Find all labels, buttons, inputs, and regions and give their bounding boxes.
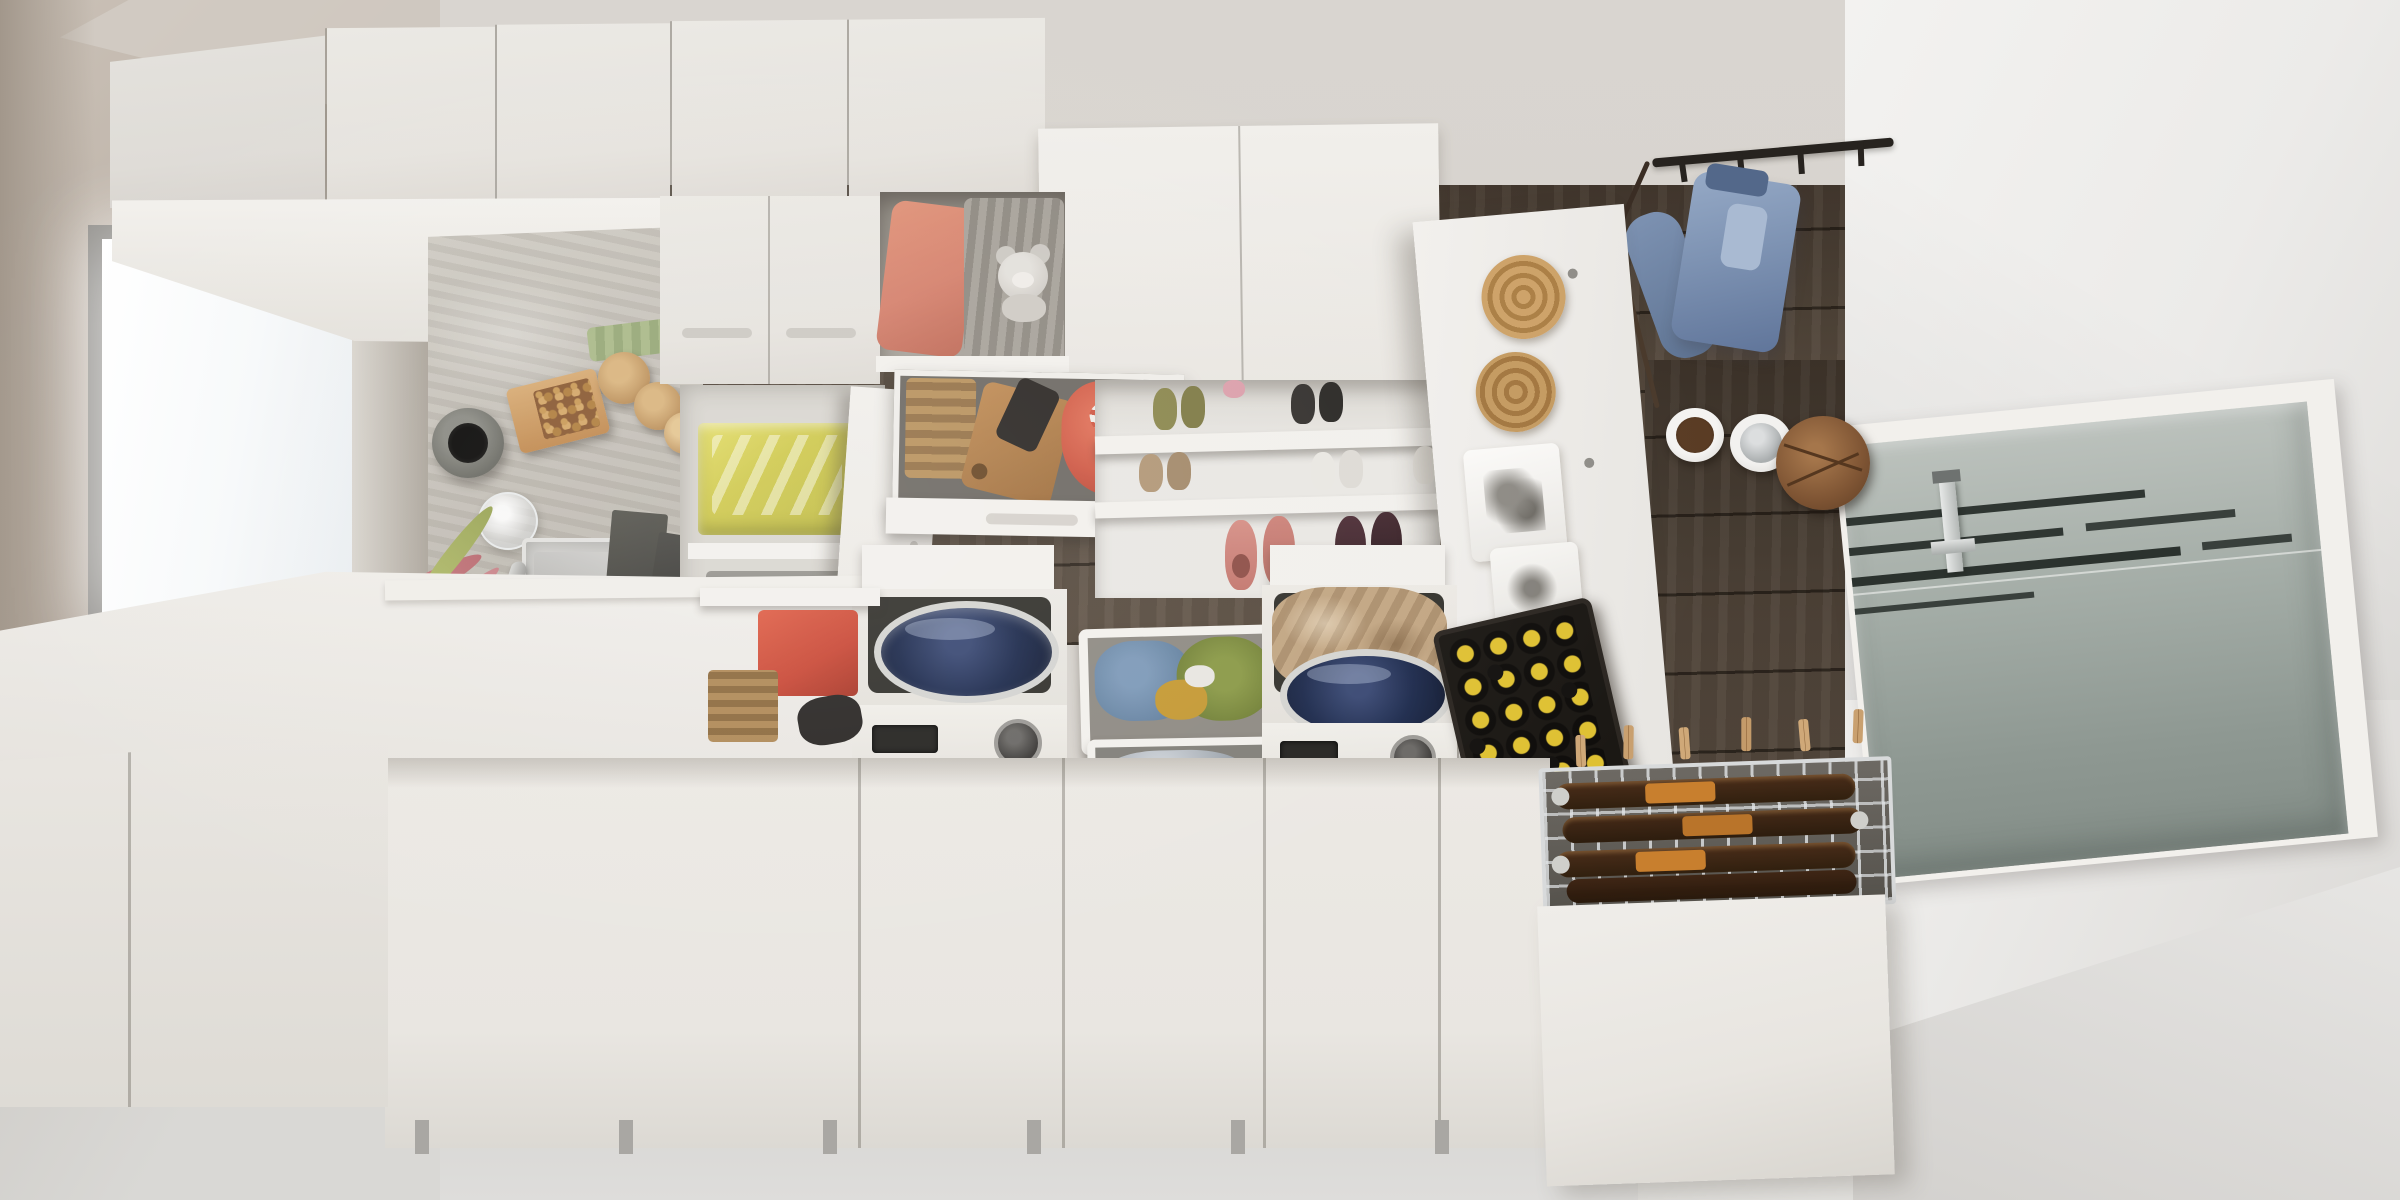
- front-seam: [1062, 758, 1065, 1148]
- front-seam: [858, 758, 861, 1148]
- door-handle-lever: [1931, 538, 1976, 555]
- handle-slot: [682, 328, 752, 338]
- clothespin: [1741, 717, 1751, 751]
- bottle-cap: [1551, 787, 1570, 806]
- door-seam: [847, 20, 849, 202]
- clothespin: [1575, 735, 1586, 767]
- shoe-tan: [1139, 454, 1163, 492]
- coat-hook: [1858, 142, 1865, 166]
- glass-door: [1831, 379, 2378, 885]
- washer-display: [872, 725, 938, 753]
- washer-lid-open: [862, 545, 1054, 593]
- pullout-shelf: [700, 600, 880, 760]
- cabinet-legs: [385, 1120, 1550, 1154]
- cabinet-door: [849, 18, 1045, 202]
- door-seam: [768, 196, 770, 384]
- vase: [432, 408, 504, 478]
- washer-1: [852, 545, 1067, 785]
- drying-rack-group: [1538, 734, 1913, 1176]
- door-stripe: [2202, 534, 2292, 551]
- door-stripe: [1846, 490, 2145, 527]
- wardrobe-opening: [880, 192, 1065, 367]
- shoe-white: [1339, 450, 1363, 488]
- shelf-frame: [700, 588, 880, 606]
- door-stripe: [2085, 509, 2235, 531]
- door-handle-cap: [1932, 469, 1961, 484]
- dark-gloves: [794, 691, 865, 749]
- drum-highlight: [1307, 664, 1391, 684]
- clothespin: [1853, 709, 1864, 743]
- rattan-mat: [1472, 349, 1559, 436]
- front-seam: [1263, 758, 1266, 1148]
- clothespin: [1623, 725, 1634, 759]
- door-seam: [670, 21, 672, 203]
- front-seam: [1438, 758, 1441, 1148]
- door-stripe: [1855, 592, 2035, 615]
- peg-hook: [1584, 457, 1595, 468]
- dog-food-bowl: [1666, 408, 1724, 462]
- closed-cabinets: [660, 196, 880, 384]
- cabinet-door: [110, 32, 325, 208]
- floor-right: [1845, 830, 2400, 1200]
- panel-seam: [1238, 126, 1244, 394]
- tall-panel: [1038, 123, 1442, 397]
- bottle-label: [1645, 781, 1716, 803]
- washer-2: [1262, 545, 1457, 790]
- board-hole: [970, 462, 989, 481]
- wicker-box: [708, 670, 778, 742]
- cabinet-door: [497, 23, 670, 205]
- drying-rack: [1538, 756, 1896, 916]
- teddy-body: [1002, 294, 1046, 322]
- clothespin: [1678, 727, 1690, 760]
- door-seam: [325, 28, 327, 206]
- teddy-snout: [1012, 272, 1034, 288]
- vase-opening: [448, 423, 488, 463]
- door-seam: [495, 25, 497, 205]
- beer-bottle: [1562, 807, 1863, 843]
- dog-food: [1676, 417, 1714, 453]
- cabinet-door: [672, 20, 847, 204]
- denim-jacket: [1640, 165, 1820, 380]
- nut-box-contents: [533, 378, 601, 441]
- peg-hook: [1567, 268, 1578, 279]
- bottle-label: [1635, 850, 1706, 872]
- front-shade: [385, 758, 1550, 788]
- rack-cabinet: [1537, 894, 1895, 1186]
- bottle-cap: [1551, 855, 1570, 874]
- shoe-pink-heel: [1223, 380, 1245, 398]
- shelf-bar: [1095, 427, 1440, 454]
- beer-bottle: [1555, 773, 1856, 809]
- cabinet-door: [327, 27, 495, 206]
- drawer-handle-slot: [986, 513, 1078, 526]
- upper-cabinets: [110, 18, 1045, 208]
- bottle-label: [1682, 814, 1753, 836]
- laundry-room-top-view: [0, 0, 2400, 1200]
- teddy-bear: [992, 244, 1056, 322]
- rattan-mat: [1478, 251, 1569, 342]
- bottle-cap: [1850, 811, 1869, 830]
- shoe-olive: [1181, 386, 1205, 428]
- shoe-olive: [1153, 388, 1177, 430]
- white-bit: [1184, 665, 1215, 688]
- drum-highlight: [905, 618, 995, 640]
- shoe-dark: [1319, 382, 1343, 422]
- shoe-dark: [1291, 384, 1315, 424]
- handle-slot: [786, 328, 856, 338]
- washer-drum: [874, 601, 1059, 703]
- washer-lid-open: [1270, 545, 1445, 589]
- base-fronts: [385, 758, 1550, 1148]
- shoe-white: [1311, 452, 1335, 490]
- front-seam: [128, 745, 131, 1107]
- bag-print: [1483, 466, 1546, 535]
- bench-fronts: [0, 735, 388, 1107]
- bag-sheen: [712, 435, 842, 515]
- shoe-opening: [1232, 554, 1250, 578]
- door-handle: [1939, 480, 1964, 573]
- wooden-box: [1776, 416, 1870, 510]
- shoe-tan: [1167, 452, 1191, 490]
- door-glass: [1839, 402, 2348, 879]
- wall-left-edge: [0, 0, 95, 665]
